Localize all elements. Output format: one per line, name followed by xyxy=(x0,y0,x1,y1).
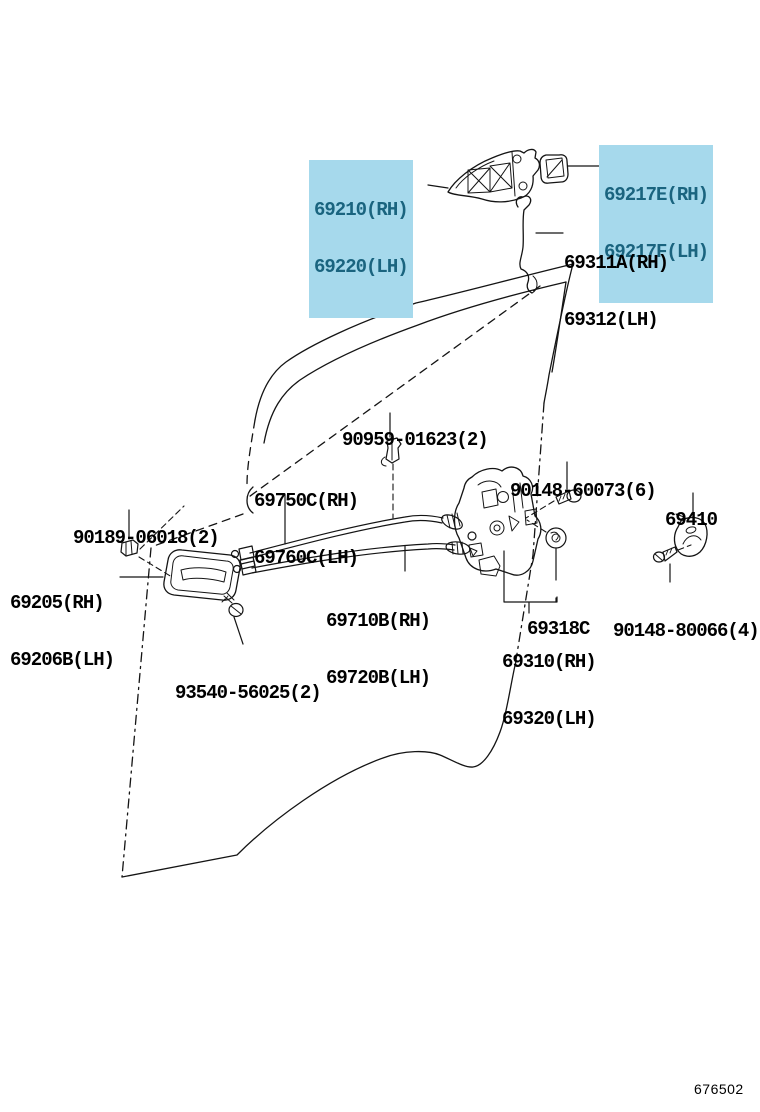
part-number: 69410 xyxy=(665,511,717,530)
part-number: 90959-01623(2) xyxy=(342,431,488,450)
part-label-69205-69206B[interactable]: 69205(RH) 69206B(LH) xyxy=(10,556,114,708)
part-number: 69312(LH) xyxy=(564,311,668,330)
part-label-69210-69220[interactable]: 69210(RH) 69220(LH) xyxy=(309,160,413,318)
part-label-93540-56025[interactable]: 93540-56025(2) xyxy=(175,646,321,741)
part-number: 69750C(RH) xyxy=(254,492,358,511)
part-number: 90148-60073(6) xyxy=(510,482,656,501)
part-number: 69205(RH) xyxy=(10,594,114,613)
part-number: 69210(RH) xyxy=(314,201,408,220)
outside-handle-drawing xyxy=(448,149,539,201)
part-number: 69760C(LH) xyxy=(254,549,358,568)
part-number: 90189-06018(2) xyxy=(73,529,219,548)
part-label-69311A-69312[interactable]: 69311A(RH) 69312(LH) xyxy=(564,216,668,368)
diagram-code: 676502 xyxy=(694,1081,744,1097)
part-number: 93540-56025(2) xyxy=(175,684,321,703)
part-label-69410[interactable]: 69410 xyxy=(665,473,717,568)
part-number: 69310(RH) xyxy=(502,653,596,672)
part-number: 69710B(RH) xyxy=(326,612,430,631)
parts-diagram-page: 69210(RH) 69220(LH) 69217E(RH) 69217F(LH… xyxy=(0,0,760,1112)
part-number: 69220(LH) xyxy=(314,258,408,277)
part-label-90148-80066[interactable]: 90148-80066(4) xyxy=(613,584,759,679)
part-label-69710B-69720B[interactable]: 69710B(RH) 69720B(LH) xyxy=(326,574,430,726)
part-number: 69320(LH) xyxy=(502,710,596,729)
part-label-69310-69320[interactable]: 69310(RH) 69320(LH) xyxy=(502,615,596,767)
part-number: 90148-80066(4) xyxy=(613,622,759,641)
part-number: 69217E(RH) xyxy=(604,186,708,205)
part-number: 69720B(LH) xyxy=(326,669,430,688)
part-label-90148-60073[interactable]: 90148-60073(6) xyxy=(510,444,656,539)
part-number: 69206B(LH) xyxy=(10,651,114,670)
lock-rod-drawing xyxy=(516,196,537,293)
part-label-90959-01623[interactable]: 90959-01623(2) xyxy=(342,393,488,488)
handle-cover-drawing xyxy=(540,155,568,183)
part-number: 69311A(RH) xyxy=(564,254,668,273)
